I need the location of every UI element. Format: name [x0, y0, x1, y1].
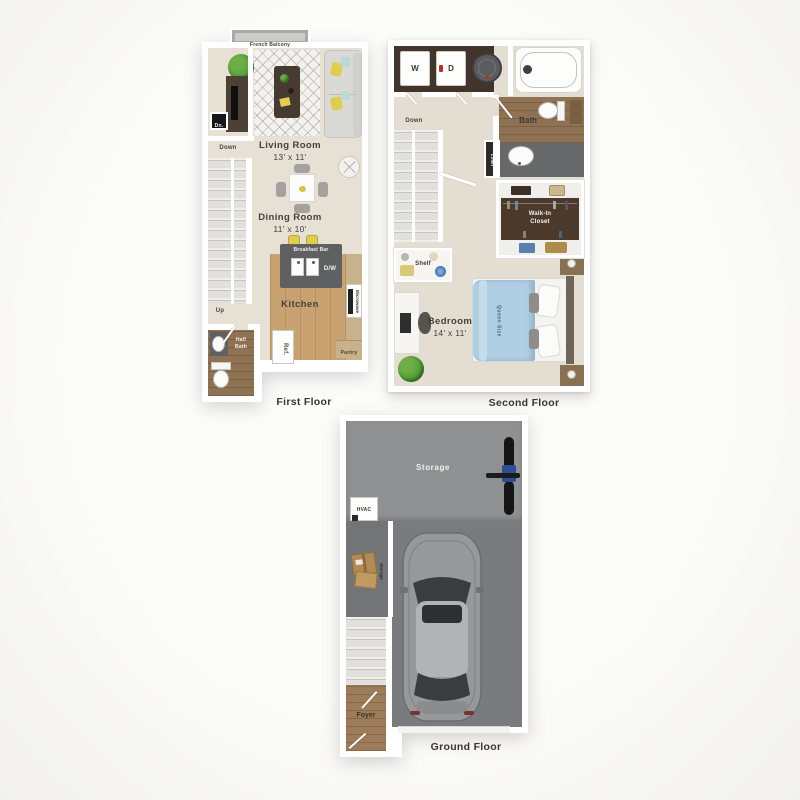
- second-down-label: Down: [394, 118, 434, 126]
- vanity-faucet-icon: [518, 162, 521, 165]
- shelf-item-gray-icon: [401, 253, 409, 261]
- dryer: D: [436, 51, 466, 86]
- water-heater: [472, 53, 502, 83]
- second-stairs-stringer: [412, 130, 415, 242]
- refrigerator-label: Ref.: [280, 337, 288, 361]
- half-bath-sink: [212, 336, 225, 352]
- closet-shelf-box-icon: [511, 186, 531, 195]
- bike-handlebar: [486, 473, 520, 478]
- utility-closet: Dn.: [210, 112, 228, 130]
- dining-chair-east: [318, 182, 328, 197]
- pantry-label: Pantry: [341, 350, 358, 356]
- nightstand-lamp-1: [567, 259, 576, 268]
- sink-faucet-2: [312, 261, 315, 264]
- shelf-item-flower-icon: [435, 266, 446, 277]
- hanging-clothes-icon-6: [559, 231, 562, 238]
- tv-console: [226, 76, 248, 132]
- utility-closet-label: Dn.: [215, 123, 224, 129]
- sofa: [324, 50, 362, 138]
- nightstand-bottom: [560, 365, 584, 386]
- foyer-right-wall: [386, 617, 392, 751]
- water-heater-cap: [485, 75, 489, 79]
- dining-centerpiece-icon: [299, 186, 306, 192]
- dining-room-name: Dining Room: [240, 212, 340, 224]
- bed-pillow-gray-1: [529, 293, 539, 313]
- storage-boxes-label: Storage: [378, 553, 384, 589]
- closet-box-blue-icon: [519, 243, 535, 253]
- sink-faucet-1: [297, 261, 300, 264]
- nightstand-lamp-2: [567, 370, 576, 379]
- storage-label: Storage: [378, 463, 488, 473]
- half-bath-toilet: [211, 362, 231, 389]
- stairs-stringer: [231, 158, 234, 304]
- second-stairs-wall: [438, 130, 443, 242]
- dining-chair-north: [294, 164, 310, 173]
- bedroom-label: Bedroom 14' x 11': [400, 316, 500, 339]
- dining-table: [289, 174, 315, 202]
- hanging-clothes-icon-2: [515, 201, 518, 210]
- coffee-table: [274, 66, 300, 118]
- bed-headboard: [566, 276, 574, 364]
- bath-toilet-tank: [557, 101, 565, 121]
- floorplan-page: { "floors": { "first": { "caption": "Fir…: [0, 0, 800, 800]
- ground-floor-caption: Ground Floor: [406, 741, 526, 755]
- tv-screen: [231, 86, 238, 120]
- washer: W: [400, 51, 430, 86]
- bath-label: Bath: [506, 116, 550, 126]
- first-floor-caption: First Floor: [252, 396, 356, 410]
- second-floor-stairs: [394, 130, 438, 242]
- dining-room-dims: 11' x 10': [240, 224, 340, 235]
- french-balcony: French Balcony: [230, 28, 310, 44]
- hanging-clothes-icon-1: [507, 201, 510, 209]
- dishwasher-label: D/W: [320, 266, 340, 274]
- living-room-name: Living Room: [240, 140, 340, 152]
- table-bowl-icon: [288, 88, 294, 94]
- toilet-bowl: [213, 370, 229, 388]
- second-floor-caption: Second Floor: [472, 397, 576, 411]
- table-plant-icon: [280, 74, 289, 83]
- bathtub-drain-icon: [523, 65, 532, 74]
- sofa-pillow-teal-1: [341, 57, 350, 67]
- hanging-clothes-icon-3: [553, 201, 556, 209]
- sofa-pillow-teal-2: [342, 91, 350, 100]
- washer-label: W: [411, 64, 419, 73]
- walk-in-closet: Walk-In Closet: [496, 180, 584, 258]
- shelf-unit: Shelf: [394, 248, 452, 282]
- shelf-item-cream-icon: [429, 252, 438, 261]
- balcony-label: French Balcony: [250, 42, 290, 48]
- bedroom-dims: 14' x 11': [400, 328, 500, 339]
- dryer-knob-icon: [439, 65, 443, 72]
- garage-door: [398, 726, 510, 733]
- dining-set: [274, 164, 330, 212]
- foyer-label: Foyer: [346, 711, 386, 720]
- bedroom-name: Bedroom: [400, 316, 500, 328]
- car-top-view: [400, 531, 484, 723]
- storage-nook-wall: [388, 521, 393, 617]
- bathtub: [515, 47, 582, 93]
- hvac-label: HVAC: [357, 507, 372, 513]
- kitchen-sink-2: [306, 258, 319, 276]
- living-left-wall: [248, 48, 253, 136]
- half-bath-right-wall: [254, 324, 260, 396]
- round-side-table: [338, 156, 360, 178]
- hvac-unit: HVAC: [350, 497, 378, 521]
- closet-basket-icon: [549, 185, 565, 196]
- bike-wheel-bottom: [504, 481, 514, 515]
- dining-chair-west: [276, 182, 286, 197]
- walk-in-closet-label: Walk-In Closet: [520, 211, 560, 227]
- bicycle-icon: [486, 437, 524, 517]
- breakfast-bar-label: Breakfast Bar: [280, 247, 342, 254]
- pantry: Pantry: [336, 340, 362, 358]
- shelf-label: Shelf: [410, 261, 436, 269]
- second-floor-plan: W D Bath Down Linen: [388, 40, 592, 412]
- ground-floor-plan: Storage HVAC Storage Foyer Grou: [340, 415, 532, 765]
- kitchen-label: Kitchen: [250, 299, 350, 311]
- dining-room-label: Dining Room 11' x 10': [240, 212, 340, 235]
- hvac-pipe-icon: [352, 515, 358, 521]
- bath-vanity-sink: [508, 146, 534, 166]
- living-room-dims: 13' x 11': [240, 152, 340, 163]
- balcony-rail: French Balcony: [235, 33, 305, 41]
- microwave-label: Microwave: [354, 287, 360, 317]
- ground-floor-stairs: [346, 617, 386, 685]
- sofa-backrest: [353, 53, 361, 137]
- half-bath-door-gap: [234, 324, 248, 330]
- laundry-tub-divider: [508, 46, 513, 96]
- living-room-label: Living Room 13' x 11': [240, 140, 340, 163]
- bedroom-plant: [398, 356, 424, 382]
- storage-box-2: [354, 571, 378, 589]
- box-label-1: [355, 559, 363, 565]
- bed-pillow-gray-2: [529, 329, 539, 349]
- table-book-icon: [279, 97, 290, 107]
- toilet-tank: [211, 362, 231, 370]
- stairs-up-label: Up: [206, 308, 234, 316]
- half-bath-vanity: [210, 332, 228, 356]
- hanging-clothes-icon-5: [523, 231, 526, 238]
- first-floor-plan: French Balcony Down Up Dn.: [200, 28, 372, 410]
- refrigerator: Ref.: [272, 330, 294, 364]
- closet-rod-area: Walk-In Closet: [501, 198, 579, 240]
- half-bath-label: Half Bath: [230, 337, 252, 350]
- kitchen-peninsula: Breakfast Bar D/W: [280, 244, 342, 288]
- hanging-clothes-icon-4: [565, 201, 568, 210]
- closet-box-gold-icon: [545, 242, 567, 253]
- bath-shelf: [570, 100, 582, 124]
- dryer-label: D: [448, 64, 454, 73]
- kitchen-sink-1: [291, 258, 304, 276]
